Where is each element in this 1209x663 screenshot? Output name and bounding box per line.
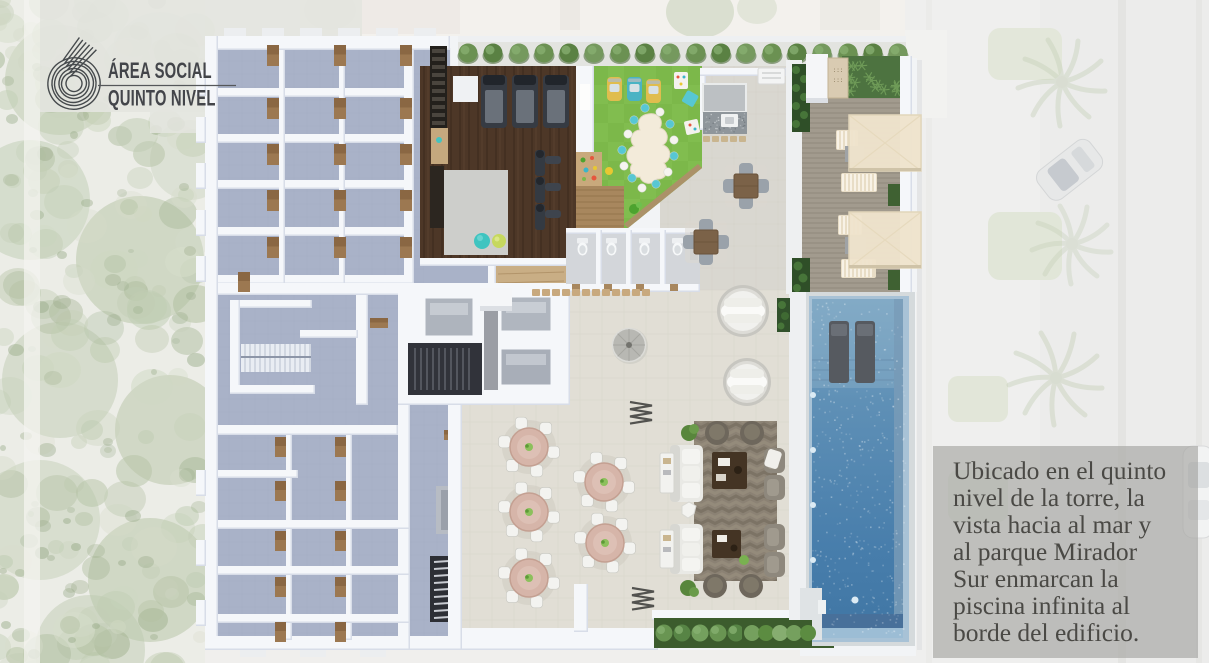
svg-text:Ubicado en el quinto: Ubicado en el quinto	[953, 456, 1166, 485]
svg-text:nivel de la torre, la: nivel de la torre, la	[953, 483, 1145, 512]
svg-text:vista hacia al mar y: vista hacia al mar y	[953, 510, 1151, 539]
svg-text:piscina infinita al: piscina infinita al	[953, 591, 1130, 620]
svg-text::::: :::	[833, 77, 844, 84]
svg-text:borde del edificio.: borde del edificio.	[953, 618, 1139, 647]
svg-text:Sur enmarcan la: Sur enmarcan la	[953, 564, 1119, 593]
svg-text:al parque Mirador: al parque Mirador	[953, 537, 1138, 566]
svg-text:QUINTO NIVEL: QUINTO NIVEL	[108, 87, 216, 112]
svg-text:ÁREA SOCIAL: ÁREA SOCIAL	[108, 58, 212, 84]
svg-text::::: :::	[833, 67, 844, 74]
